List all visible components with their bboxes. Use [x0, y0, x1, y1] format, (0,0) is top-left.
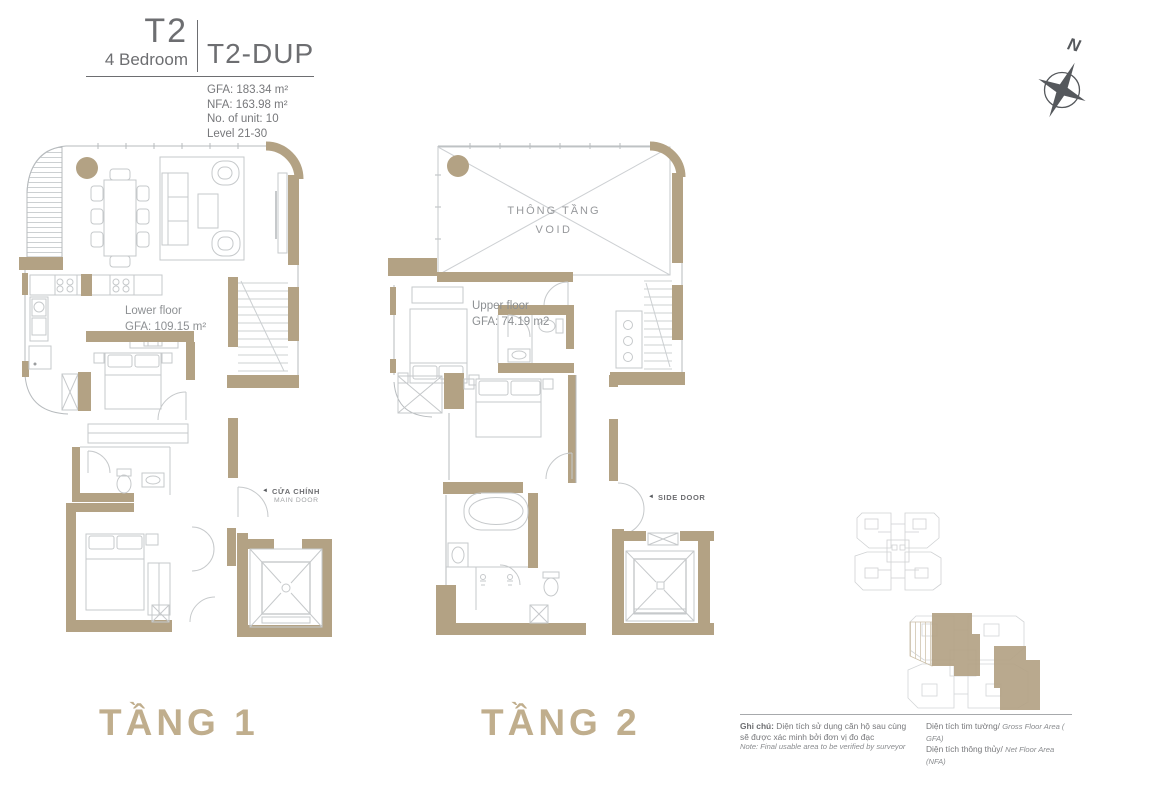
floor1-bathroom [72, 447, 170, 502]
floor2-area-note: Upper floor GFA: 74.19 m2 [472, 298, 549, 330]
floor2-walls-right [650, 146, 683, 340]
void-label: THÔNG TẦNG VOID [490, 205, 618, 236]
plant-icon [76, 157, 98, 179]
main-door-arrow-icon: ◄ [262, 488, 268, 494]
unit-variant: T2-DUP [207, 38, 314, 70]
floor1-area-title: Lower floor [125, 303, 206, 319]
floor2-bedroom3 [390, 287, 479, 385]
keyplan-duplex-floor [898, 608, 1068, 716]
floor2-elevator [612, 529, 714, 635]
floor2-area-value: GFA: 74.19 m2 [472, 314, 549, 330]
floor2-area-title: Upper floor [472, 298, 549, 314]
floor2-corridor [576, 375, 644, 535]
door-arc [190, 597, 215, 622]
door-arc [192, 549, 214, 571]
floor2-bedroom4 [449, 375, 576, 493]
legend-note: Ghi chú: Diện tích sử dụng căn hộ sau cù… [740, 721, 910, 767]
main-door-label-vi: CỬA CHÍNH [272, 487, 320, 496]
floor1-lift-lobby [237, 533, 332, 637]
plan-floor1-drawing [10, 135, 340, 710]
floor1-corridor [152, 418, 268, 622]
side-door-label: ◄SIDE DOOR [648, 493, 705, 502]
floorplan-page: T2 4 Bedroom T2-DUP GFA: 183.34 m² NFA: … [0, 0, 1170, 791]
highlighted-unit-c [994, 646, 1040, 710]
armchair [212, 161, 239, 185]
door-arc [88, 451, 110, 473]
compass-icon: N [1026, 28, 1102, 124]
title-underline [86, 76, 314, 77]
unit-info: GFA: 183.34 m² NFA: 163.98 m² No. of uni… [207, 83, 288, 141]
dining-table [104, 180, 136, 256]
floor1-area-note: Lower floor GFA: 109.15 m² [125, 303, 206, 335]
unit-code: T2 [88, 12, 188, 51]
title-divider [197, 20, 198, 72]
floor1-label: TẦNG 1 [99, 702, 259, 744]
side-door-label-text: SIDE DOOR [658, 493, 706, 502]
floor1-bedroom2 [66, 503, 172, 632]
coffee-table [198, 194, 218, 228]
compass-star [1038, 63, 1085, 117]
floor2-label: TẦNG 2 [481, 702, 641, 744]
legend-areas: Diện tích tim tường/ Gross Floor Area ( … [926, 721, 1072, 767]
door-arc [158, 392, 186, 420]
unit-nfa: NFA: 163.98 m² [207, 98, 288, 113]
legend-note-label: Ghi chú: [740, 721, 774, 731]
legend-note-vi-2: sẽ được xác minh bởi đơn vị đo đạc [740, 732, 910, 743]
door-arc [192, 527, 214, 549]
legend-nfa-vi: Diện tích thông thủy/ [926, 744, 1003, 754]
legend-gfa-vi: Diện tích tim tường/ [926, 721, 1000, 731]
floor1-balcony [19, 147, 63, 270]
main-door-label: ◄CỬA CHÍNH MAIN DOOR [262, 487, 320, 505]
legend-note-vi-1: Diện tích sử dụng căn hộ sau cùng [776, 721, 906, 731]
keyplan-typical-floor [845, 506, 960, 596]
floor1-living-dining [76, 157, 287, 267]
legend-note-en: Note: Final usable area to be verified b… [740, 742, 910, 753]
plan-floor1: Lower floor GFA: 109.15 m² ◄CỬA CHÍNH MA… [10, 135, 340, 710]
dresser [412, 287, 463, 303]
floor1-area-value: GFA: 109.15 m² [125, 319, 206, 335]
unit-type: 4 Bedroom [60, 50, 188, 70]
legend: Ghi chú: Diện tích sử dụng căn hộ sau cù… [740, 714, 1072, 767]
plant-icon [447, 155, 469, 177]
highlighted-unit-b [932, 613, 980, 676]
main-door-label-en: MAIN DOOR [274, 496, 320, 505]
side-door-arrow-icon: ◄ [648, 494, 654, 500]
plan-floor2: THÔNG TẦNG VOID Upper floor GFA: 74.19 m… [380, 135, 720, 710]
unit-gfa: GFA: 183.34 m² [207, 83, 288, 98]
floor2-bathroom3 [436, 482, 586, 635]
armchair [212, 231, 240, 256]
highlighted-unit-a [910, 622, 932, 666]
sofa [162, 173, 188, 245]
floor1-private-lift [62, 372, 91, 411]
unit-count: No. of unit: 10 [207, 112, 288, 127]
compass-north-label: N [1066, 34, 1083, 56]
side-door-arc [618, 483, 644, 509]
void-label-en: VOID [490, 224, 618, 236]
tv-console [278, 173, 287, 253]
void-label-vi: THÔNG TẦNG [490, 205, 618, 217]
